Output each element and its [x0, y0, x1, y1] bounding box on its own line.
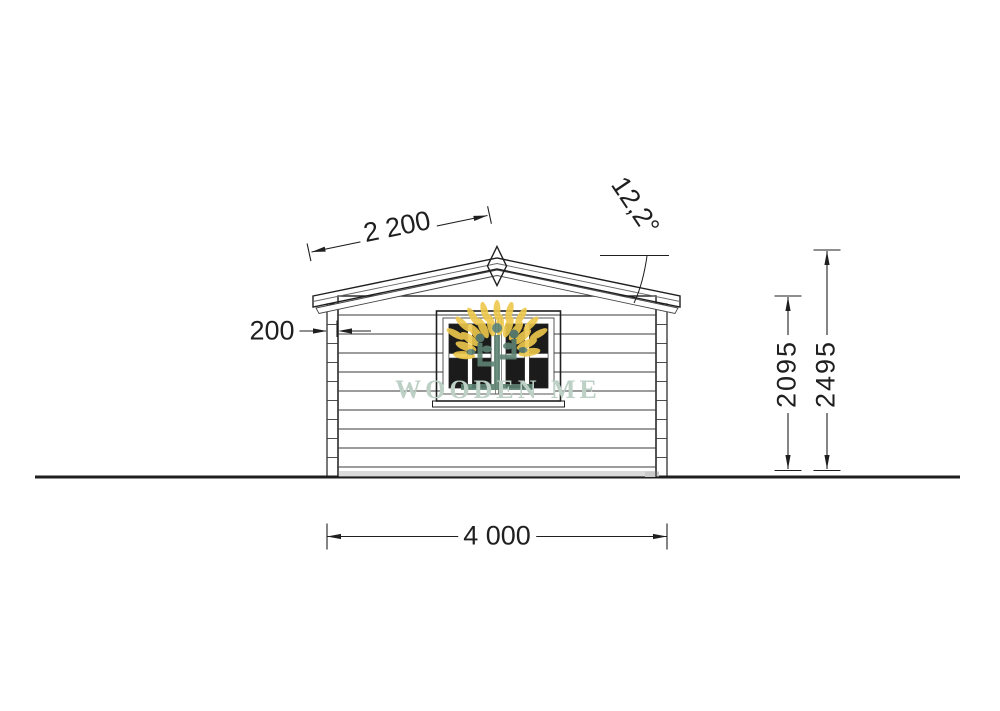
label-wall-height: 2095 — [774, 335, 801, 413]
plinth-strip — [339, 471, 656, 476]
ridge-finial-diamond — [488, 247, 507, 286]
corner-logs-left — [327, 304, 338, 477]
corner-shadow — [645, 472, 659, 478]
label-ridge-height: 2495 — [813, 335, 840, 413]
dim-log-thickness — [294, 321, 371, 338]
label-log-thickness: 200 — [244, 318, 299, 345]
elevation-drawing: 2 200 12,2° 200 2095 2495 4 000 WOODEN M… — [0, 0, 1000, 711]
label-overall-width: 4 000 — [458, 523, 536, 550]
watermark-text: WOODEN ME — [390, 377, 606, 403]
drawing-linework — [0, 0, 1000, 711]
